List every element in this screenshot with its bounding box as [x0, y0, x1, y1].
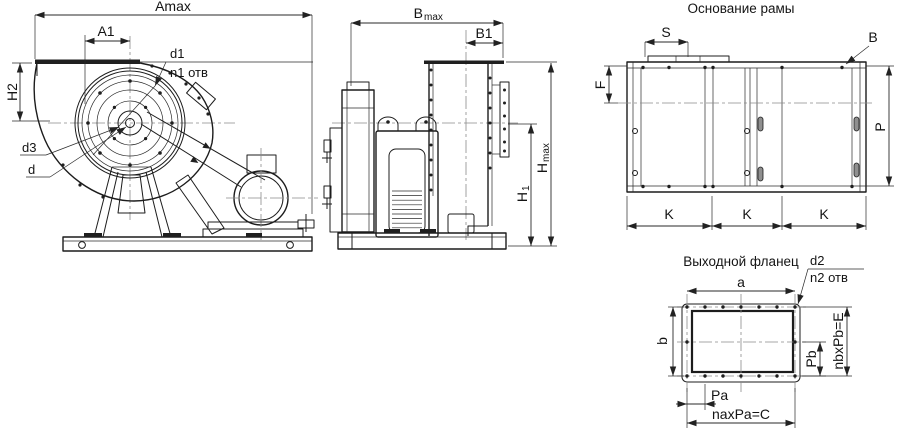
- dim-h1-label: H: [514, 192, 530, 202]
- dim-s: S: [645, 24, 688, 57]
- support-pedestal: [94, 167, 224, 237]
- mounting-pad: [648, 56, 729, 62]
- electric-motor: [322, 82, 374, 232]
- dim-k1-label: K: [664, 206, 674, 222]
- dim-p-label: P: [872, 122, 888, 131]
- callout-d2-label: d2: [810, 253, 824, 268]
- frame-bolt-dots: [641, 66, 853, 188]
- dim-a1-label: A1: [97, 23, 114, 39]
- frame-holes: [633, 117, 860, 181]
- callout-b-label: B: [868, 29, 877, 45]
- dim-c-label: naxPa=C: [712, 406, 770, 422]
- inlet-plate: [35, 60, 140, 65]
- dim-k3-label: K: [819, 206, 829, 222]
- support-strut: [176, 175, 224, 234]
- dim-f-label: F: [592, 81, 608, 90]
- callout-n1-label: n1 отв: [170, 65, 208, 80]
- dim-a-label: a: [737, 274, 745, 290]
- dim-k2-label: K: [742, 206, 752, 222]
- motor-terminal-box: [247, 155, 276, 173]
- dim-c: naxPa=C: [687, 388, 795, 428]
- dim-amax: Amax: [35, 0, 312, 214]
- side-view: B max B1 H 1 H max: [322, 5, 557, 249]
- dim-bmax-label: B: [414, 5, 423, 21]
- dim-e-label: nbxPb=E: [830, 312, 846, 369]
- outlet-duct: [424, 61, 509, 237]
- callout-d2: d2 n2 отв: [798, 253, 864, 304]
- dim-b-label: b: [654, 337, 670, 345]
- dim-k: K K K: [627, 196, 866, 230]
- callout-b: B: [846, 29, 878, 64]
- front-view: Amax A1 H2 d1 n1 отв d3: [4, 0, 318, 251]
- fan-scroll-housing: [34, 63, 215, 201]
- frame-outline: [618, 56, 872, 192]
- dim-p: P: [866, 66, 894, 186]
- dim-pa-label: Pa: [711, 387, 728, 403]
- frame-base-view: Основание рамы: [592, 1, 894, 230]
- dim-b1: B1: [466, 25, 503, 43]
- dim-hmax: H max: [506, 62, 557, 246]
- motor-slide-rails: [208, 222, 298, 229]
- outlet-flange-view: Выходной фланец: [654, 253, 864, 428]
- callout-d3-label: d3: [22, 140, 36, 155]
- dim-pb: Pb: [802, 342, 826, 376]
- dim-hmax-sub: max: [541, 143, 552, 162]
- louvers: [392, 191, 422, 228]
- callout-d-label: d: [28, 162, 35, 177]
- motor-pulley: [203, 148, 318, 240]
- dim-f: F: [592, 66, 627, 103]
- dim-bmax-sub: max: [424, 12, 443, 23]
- duct-top-flange: [424, 61, 504, 65]
- outlet-flange-title: Выходной фланец: [683, 254, 799, 269]
- dim-h2-label: H2: [4, 83, 20, 101]
- dim-h2: H2: [4, 63, 50, 121]
- dim-b1-label: B1: [475, 25, 492, 41]
- access-panel: [448, 214, 474, 233]
- flange-outline: [677, 294, 808, 392]
- pillow-block: [378, 117, 398, 131]
- dim-bmax: B max: [351, 5, 503, 86]
- duct-bolt-dots: [430, 69, 492, 192]
- callout-n2-label: n2 отв: [810, 270, 848, 285]
- dim-h1: H 1: [508, 124, 557, 246]
- dim-pb-label: Pb: [803, 350, 819, 367]
- fan-dimensional-drawing: Amax A1 H2 d1 n1 отв d3: [0, 0, 900, 436]
- dim-amax-label: Amax: [155, 0, 191, 14]
- base-frame-front: [63, 233, 312, 251]
- dim-s-label: S: [661, 24, 670, 40]
- dim-h1-sub: 1: [521, 185, 532, 191]
- dim-b: b: [654, 307, 684, 376]
- outlet-flange-side: [500, 82, 509, 157]
- pedestal-window: [118, 175, 145, 213]
- dim-a: a: [687, 274, 795, 291]
- dim-hmax-label: H: [534, 163, 550, 173]
- drawing-canvas: Amax A1 H2 d1 n1 отв d3: [0, 0, 900, 436]
- frame-base-title: Основание рамы: [688, 1, 795, 16]
- callout-d1-label: d1: [170, 46, 184, 61]
